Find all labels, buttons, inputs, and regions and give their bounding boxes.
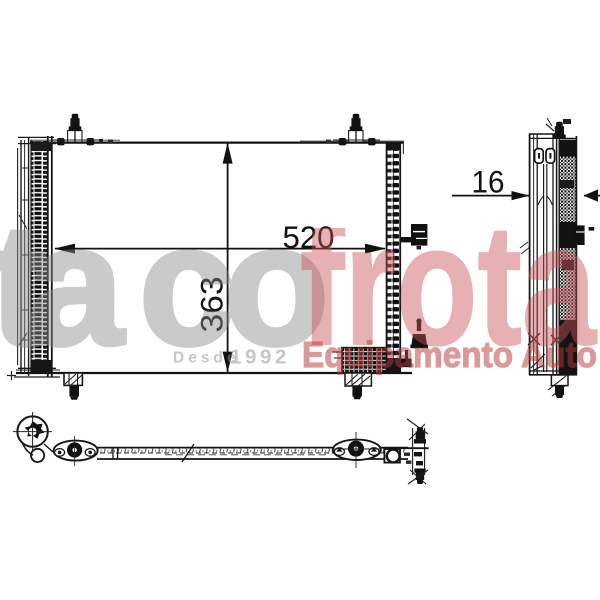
svg-text:Equipamento Auto: Equipamento Auto xyxy=(302,334,597,375)
svg-text:16: 16 xyxy=(472,164,505,200)
svg-text:1992: 1992 xyxy=(230,346,290,369)
